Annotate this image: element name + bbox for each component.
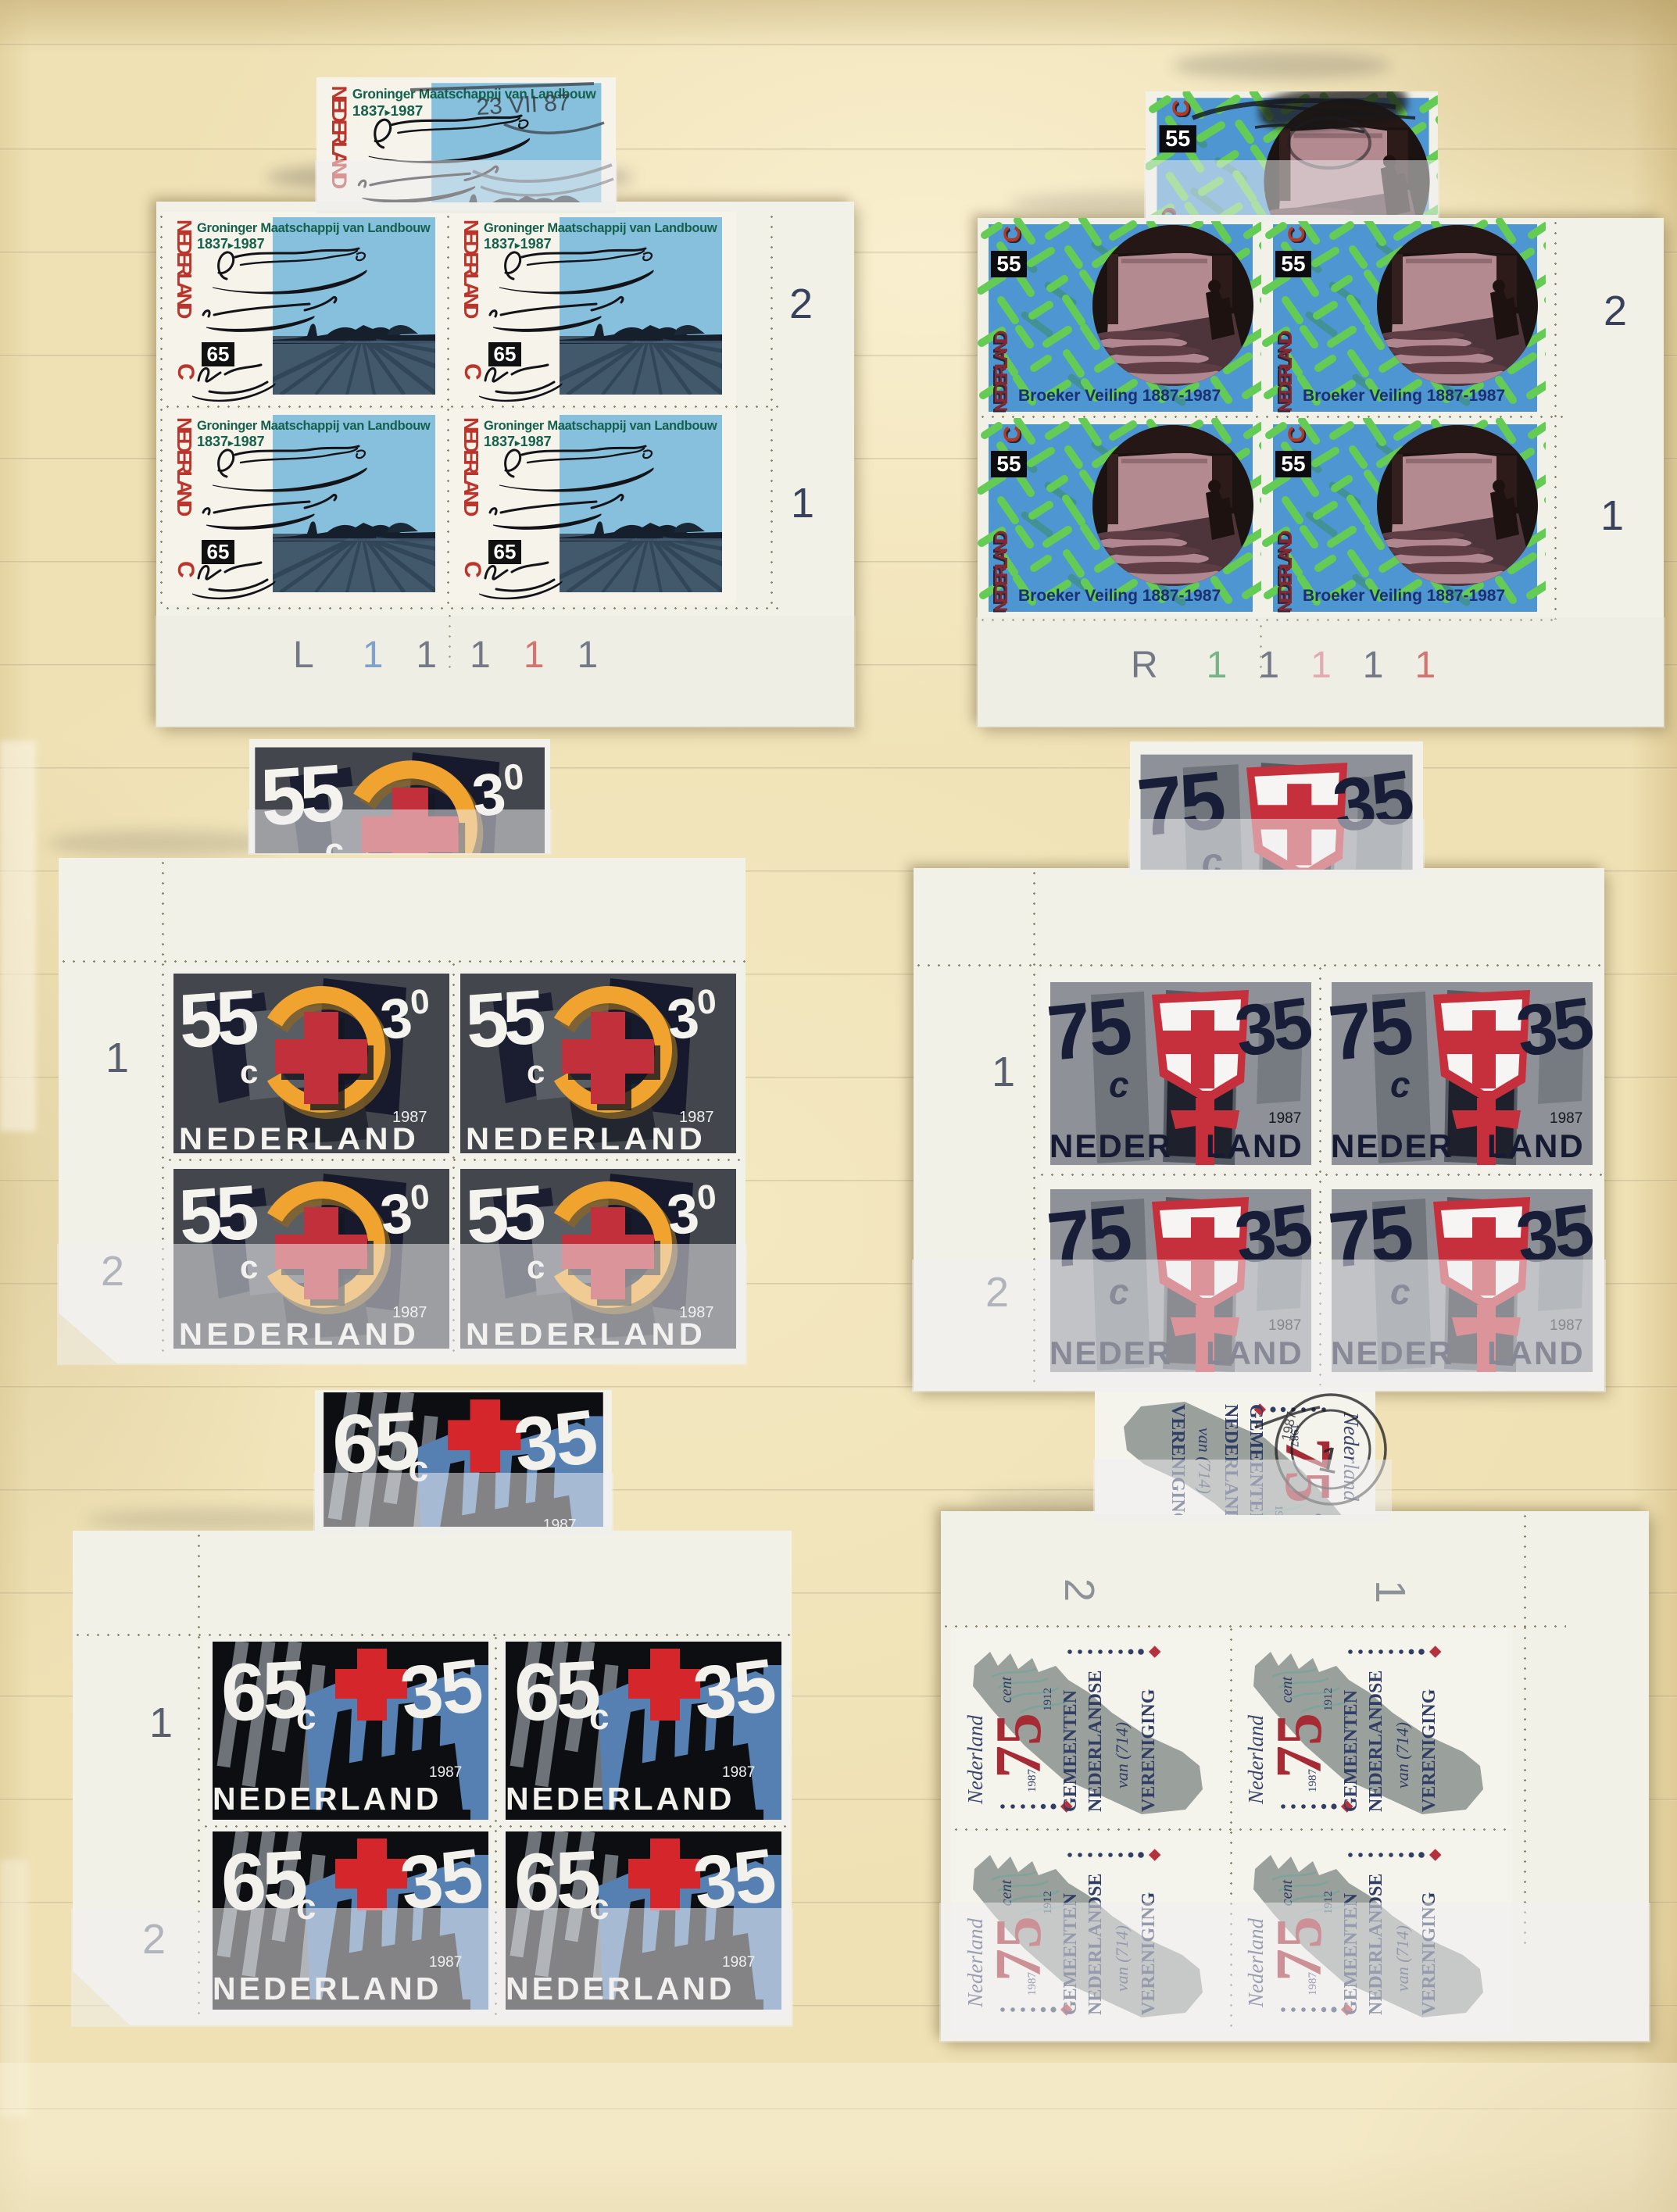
svg-text:1987: 1987 bbox=[1278, 1410, 1299, 1442]
svg-text:23 VII 87: 23 VII 87 bbox=[476, 90, 571, 120]
